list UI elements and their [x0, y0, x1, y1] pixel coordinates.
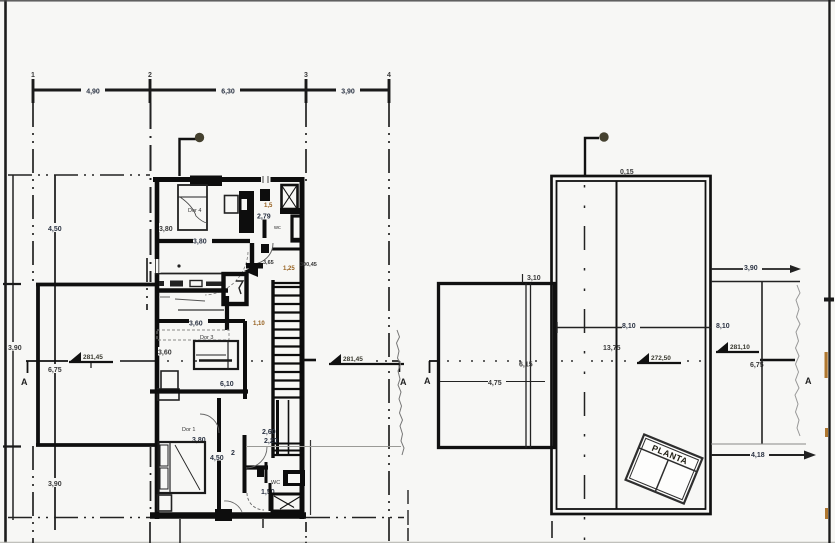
svg-text:8,10: 8,10 [716, 323, 730, 330]
svg-text:2,20: 2,20 [264, 438, 278, 445]
svg-text:8,10: 8,10 [622, 323, 636, 330]
svg-text:3,90: 3,90 [744, 265, 758, 272]
svg-text:6,30: 6,30 [221, 89, 235, 96]
svg-text:1,25: 1,25 [283, 266, 295, 272]
svg-text:1: 1 [31, 72, 35, 79]
svg-text:300,45: 300,45 [300, 262, 317, 268]
svg-text:1,5: 1,5 [264, 203, 273, 209]
svg-text:wc: wc [273, 225, 281, 231]
svg-text:3,90: 3,90 [48, 481, 62, 488]
svg-text:6,15: 6,15 [519, 362, 533, 369]
svg-text:3,80: 3,80 [193, 239, 207, 246]
svg-text:13,75: 13,75 [603, 345, 621, 352]
svg-text:3,65: 3,65 [263, 260, 274, 266]
svg-text:6,10: 6,10 [220, 381, 234, 388]
svg-text:2: 2 [148, 72, 152, 79]
svg-text:4,90: 4,90 [86, 89, 100, 96]
svg-text:281,10: 281,10 [730, 344, 750, 351]
svg-text:4,18: 4,18 [751, 452, 765, 459]
svg-text:3,90: 3,90 [341, 89, 355, 96]
svg-text:4,50: 4,50 [48, 226, 62, 233]
svg-text:A: A [424, 376, 431, 386]
svg-text:2,60: 2,60 [262, 429, 276, 436]
svg-text:3,90: 3,90 [8, 345, 22, 352]
svg-text:A: A [805, 376, 812, 386]
svg-text:272,50: 272,50 [651, 355, 671, 362]
svg-text:A: A [400, 377, 407, 387]
svg-text:A: A [21, 377, 28, 387]
svg-text:4,75: 4,75 [488, 380, 502, 387]
svg-text:1,10: 1,10 [253, 321, 265, 327]
svg-text:4: 4 [387, 72, 391, 79]
svg-text:3,60: 3,60 [158, 350, 172, 357]
svg-text:2: 2 [231, 450, 235, 457]
svg-text:Dor 4: Dor 4 [188, 208, 201, 214]
svg-text:3,60: 3,60 [189, 321, 203, 328]
svg-text:3,10: 3,10 [527, 275, 541, 282]
svg-text:281,45: 281,45 [83, 354, 103, 361]
svg-text:4,50: 4,50 [210, 455, 224, 462]
svg-text:281,45: 281,45 [343, 356, 363, 363]
svg-text:WC: WC [271, 480, 280, 486]
svg-text:2,79: 2,79 [257, 214, 271, 221]
svg-text:3,80: 3,80 [159, 226, 173, 233]
svg-text:Dor 1: Dor 1 [182, 427, 195, 433]
svg-text:6,75: 6,75 [48, 367, 62, 374]
svg-text:3: 3 [304, 72, 308, 79]
svg-text:0,15: 0,15 [620, 169, 634, 176]
